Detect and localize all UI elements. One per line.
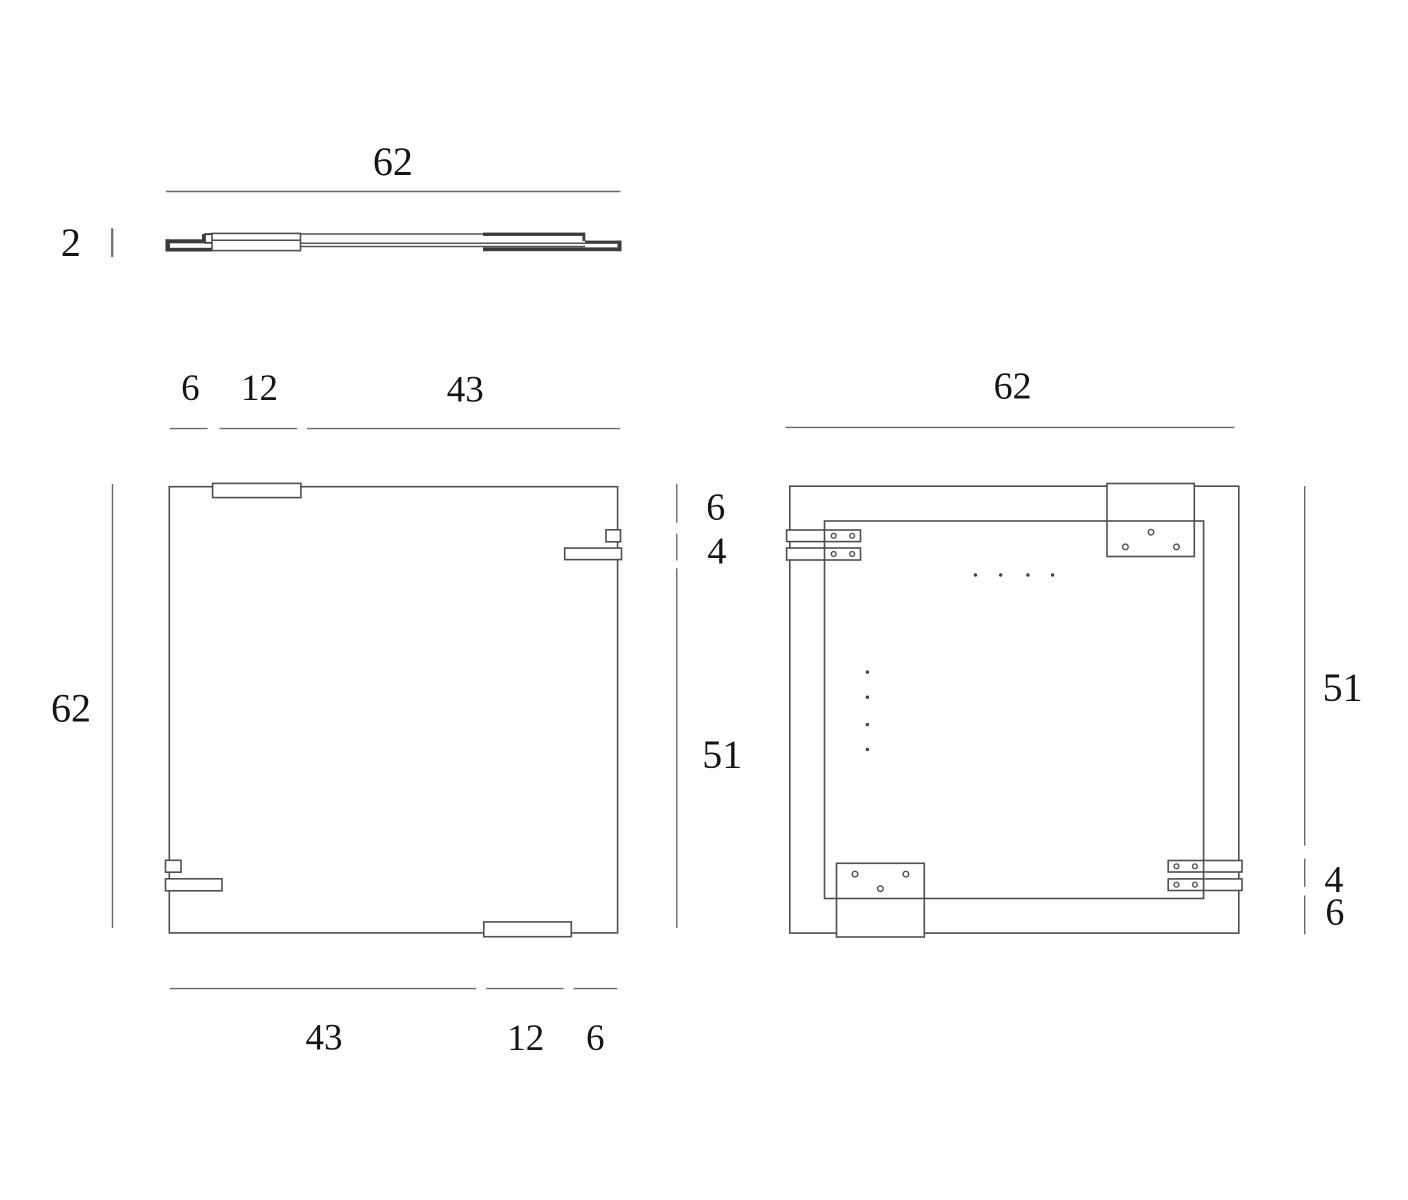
svg-text:6: 6 bbox=[586, 1018, 605, 1059]
svg-text:6: 6 bbox=[181, 368, 200, 409]
svg-text:12: 12 bbox=[507, 1018, 544, 1059]
svg-text:4: 4 bbox=[707, 531, 726, 573]
svg-text:6: 6 bbox=[1325, 892, 1344, 934]
svg-text:12: 12 bbox=[241, 368, 278, 409]
svg-text:51: 51 bbox=[1323, 665, 1363, 710]
svg-text:62: 62 bbox=[51, 686, 91, 731]
svg-text:62: 62 bbox=[373, 139, 413, 184]
svg-text:2: 2 bbox=[61, 220, 81, 265]
svg-text:43: 43 bbox=[447, 370, 484, 411]
svg-text:51: 51 bbox=[702, 732, 742, 777]
svg-text:43: 43 bbox=[306, 1018, 343, 1059]
svg-text:6: 6 bbox=[706, 487, 725, 529]
svg-text:62: 62 bbox=[994, 366, 1032, 408]
